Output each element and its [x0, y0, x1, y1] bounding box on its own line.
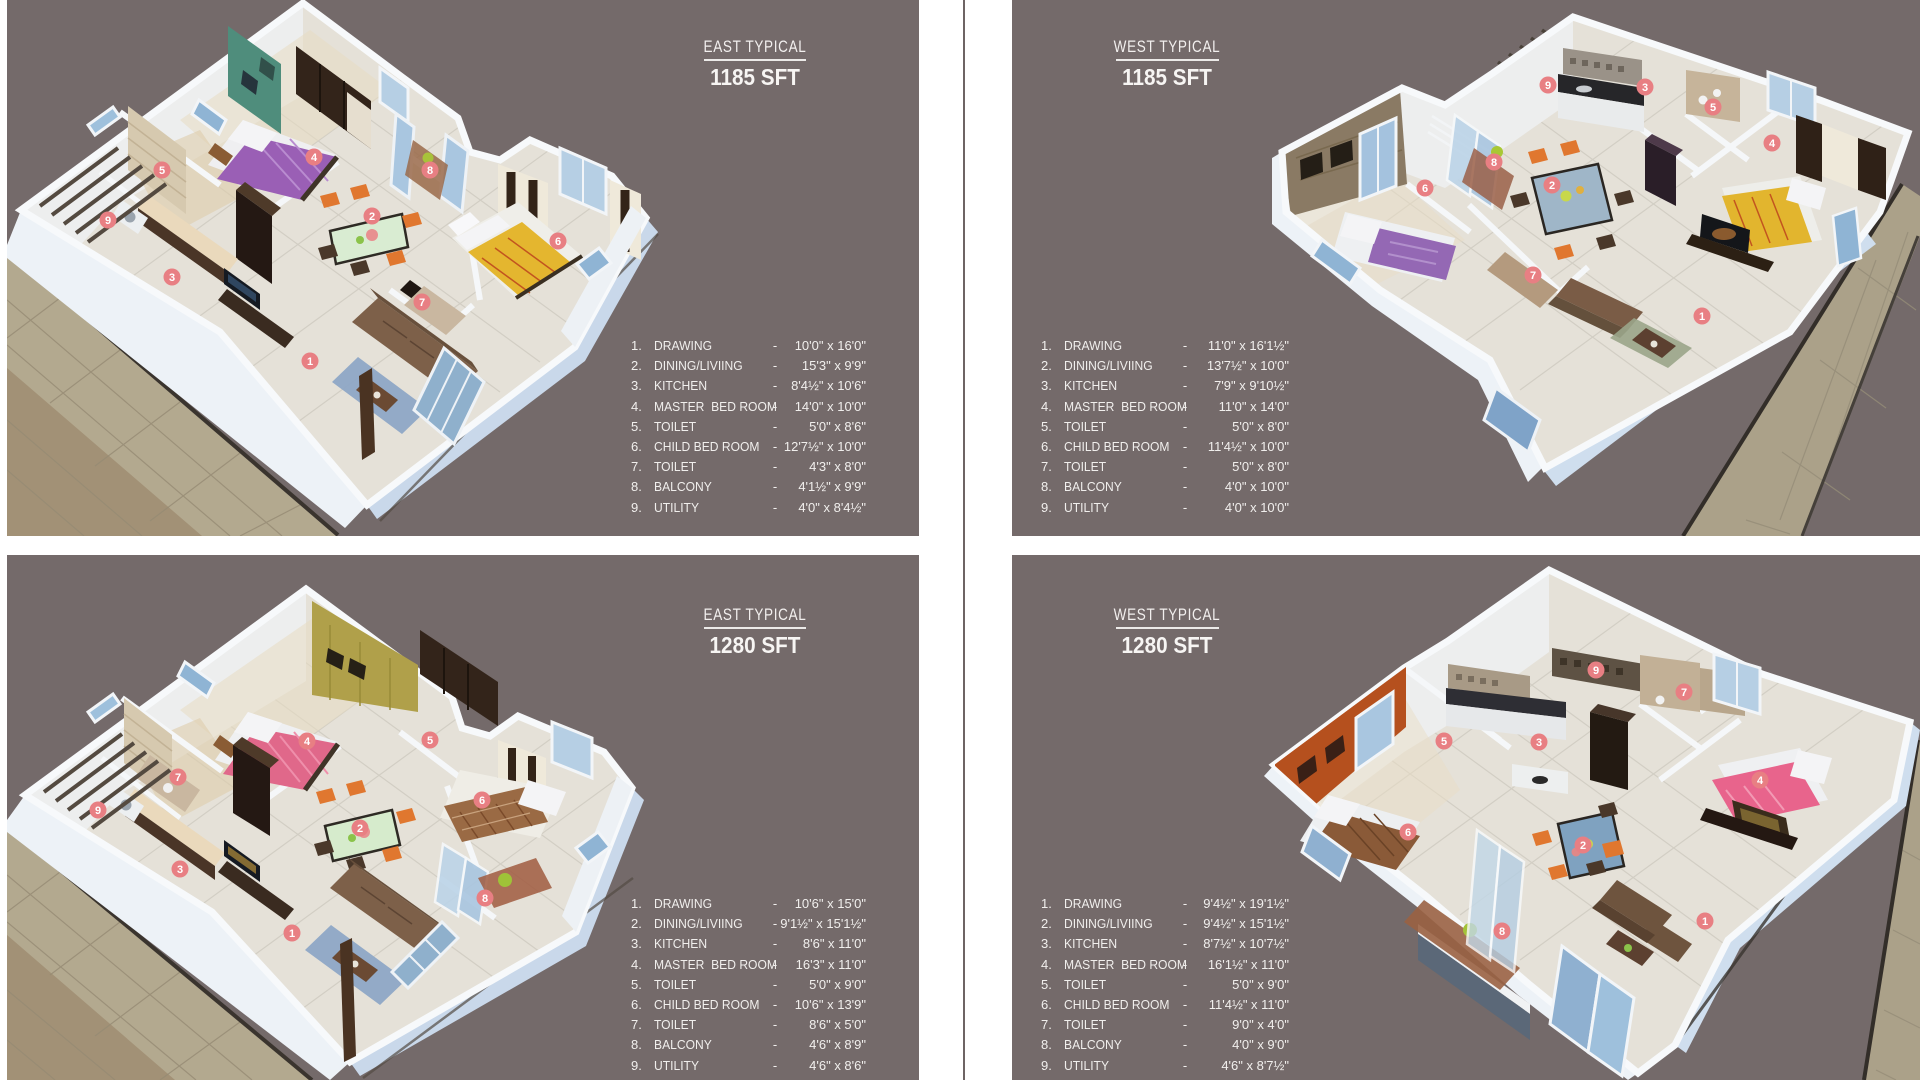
svg-text:7: 7: [419, 297, 425, 309]
svg-text:3: 3: [1642, 82, 1648, 94]
svg-text:7: 7: [175, 772, 181, 784]
svg-text:9: 9: [95, 805, 101, 817]
svg-text:5: 5: [1710, 102, 1716, 114]
svg-text:5: 5: [1441, 736, 1447, 748]
svg-text:2: 2: [1580, 840, 1586, 852]
svg-text:2: 2: [1549, 180, 1555, 192]
svg-text:8: 8: [482, 893, 488, 905]
svg-text:1: 1: [307, 356, 313, 368]
svg-text:3: 3: [1536, 737, 1542, 749]
svg-text:2: 2: [369, 211, 375, 223]
svg-text:4: 4: [1757, 775, 1764, 787]
svg-text:7: 7: [1530, 270, 1536, 282]
svg-text:8: 8: [1491, 157, 1497, 169]
svg-text:2: 2: [357, 823, 363, 835]
svg-text:4: 4: [311, 152, 318, 164]
svg-text:3: 3: [169, 272, 175, 284]
svg-text:6: 6: [479, 795, 485, 807]
svg-text:5: 5: [159, 165, 165, 177]
svg-text:8: 8: [427, 165, 433, 177]
svg-text:8: 8: [1499, 926, 1505, 938]
svg-text:7: 7: [1681, 687, 1687, 699]
svg-text:1: 1: [1702, 916, 1708, 928]
svg-text:3: 3: [177, 864, 183, 876]
svg-text:9: 9: [1593, 665, 1599, 677]
svg-text:6: 6: [555, 236, 561, 248]
svg-text:6: 6: [1405, 827, 1411, 839]
svg-text:9: 9: [105, 215, 111, 227]
svg-text:4: 4: [1769, 138, 1776, 150]
svg-text:6: 6: [1422, 183, 1428, 195]
svg-text:1: 1: [1699, 311, 1705, 323]
svg-text:9: 9: [1545, 80, 1551, 92]
svg-text:4: 4: [304, 736, 311, 748]
svg-text:5: 5: [427, 735, 433, 747]
svg-text:1: 1: [289, 928, 295, 940]
